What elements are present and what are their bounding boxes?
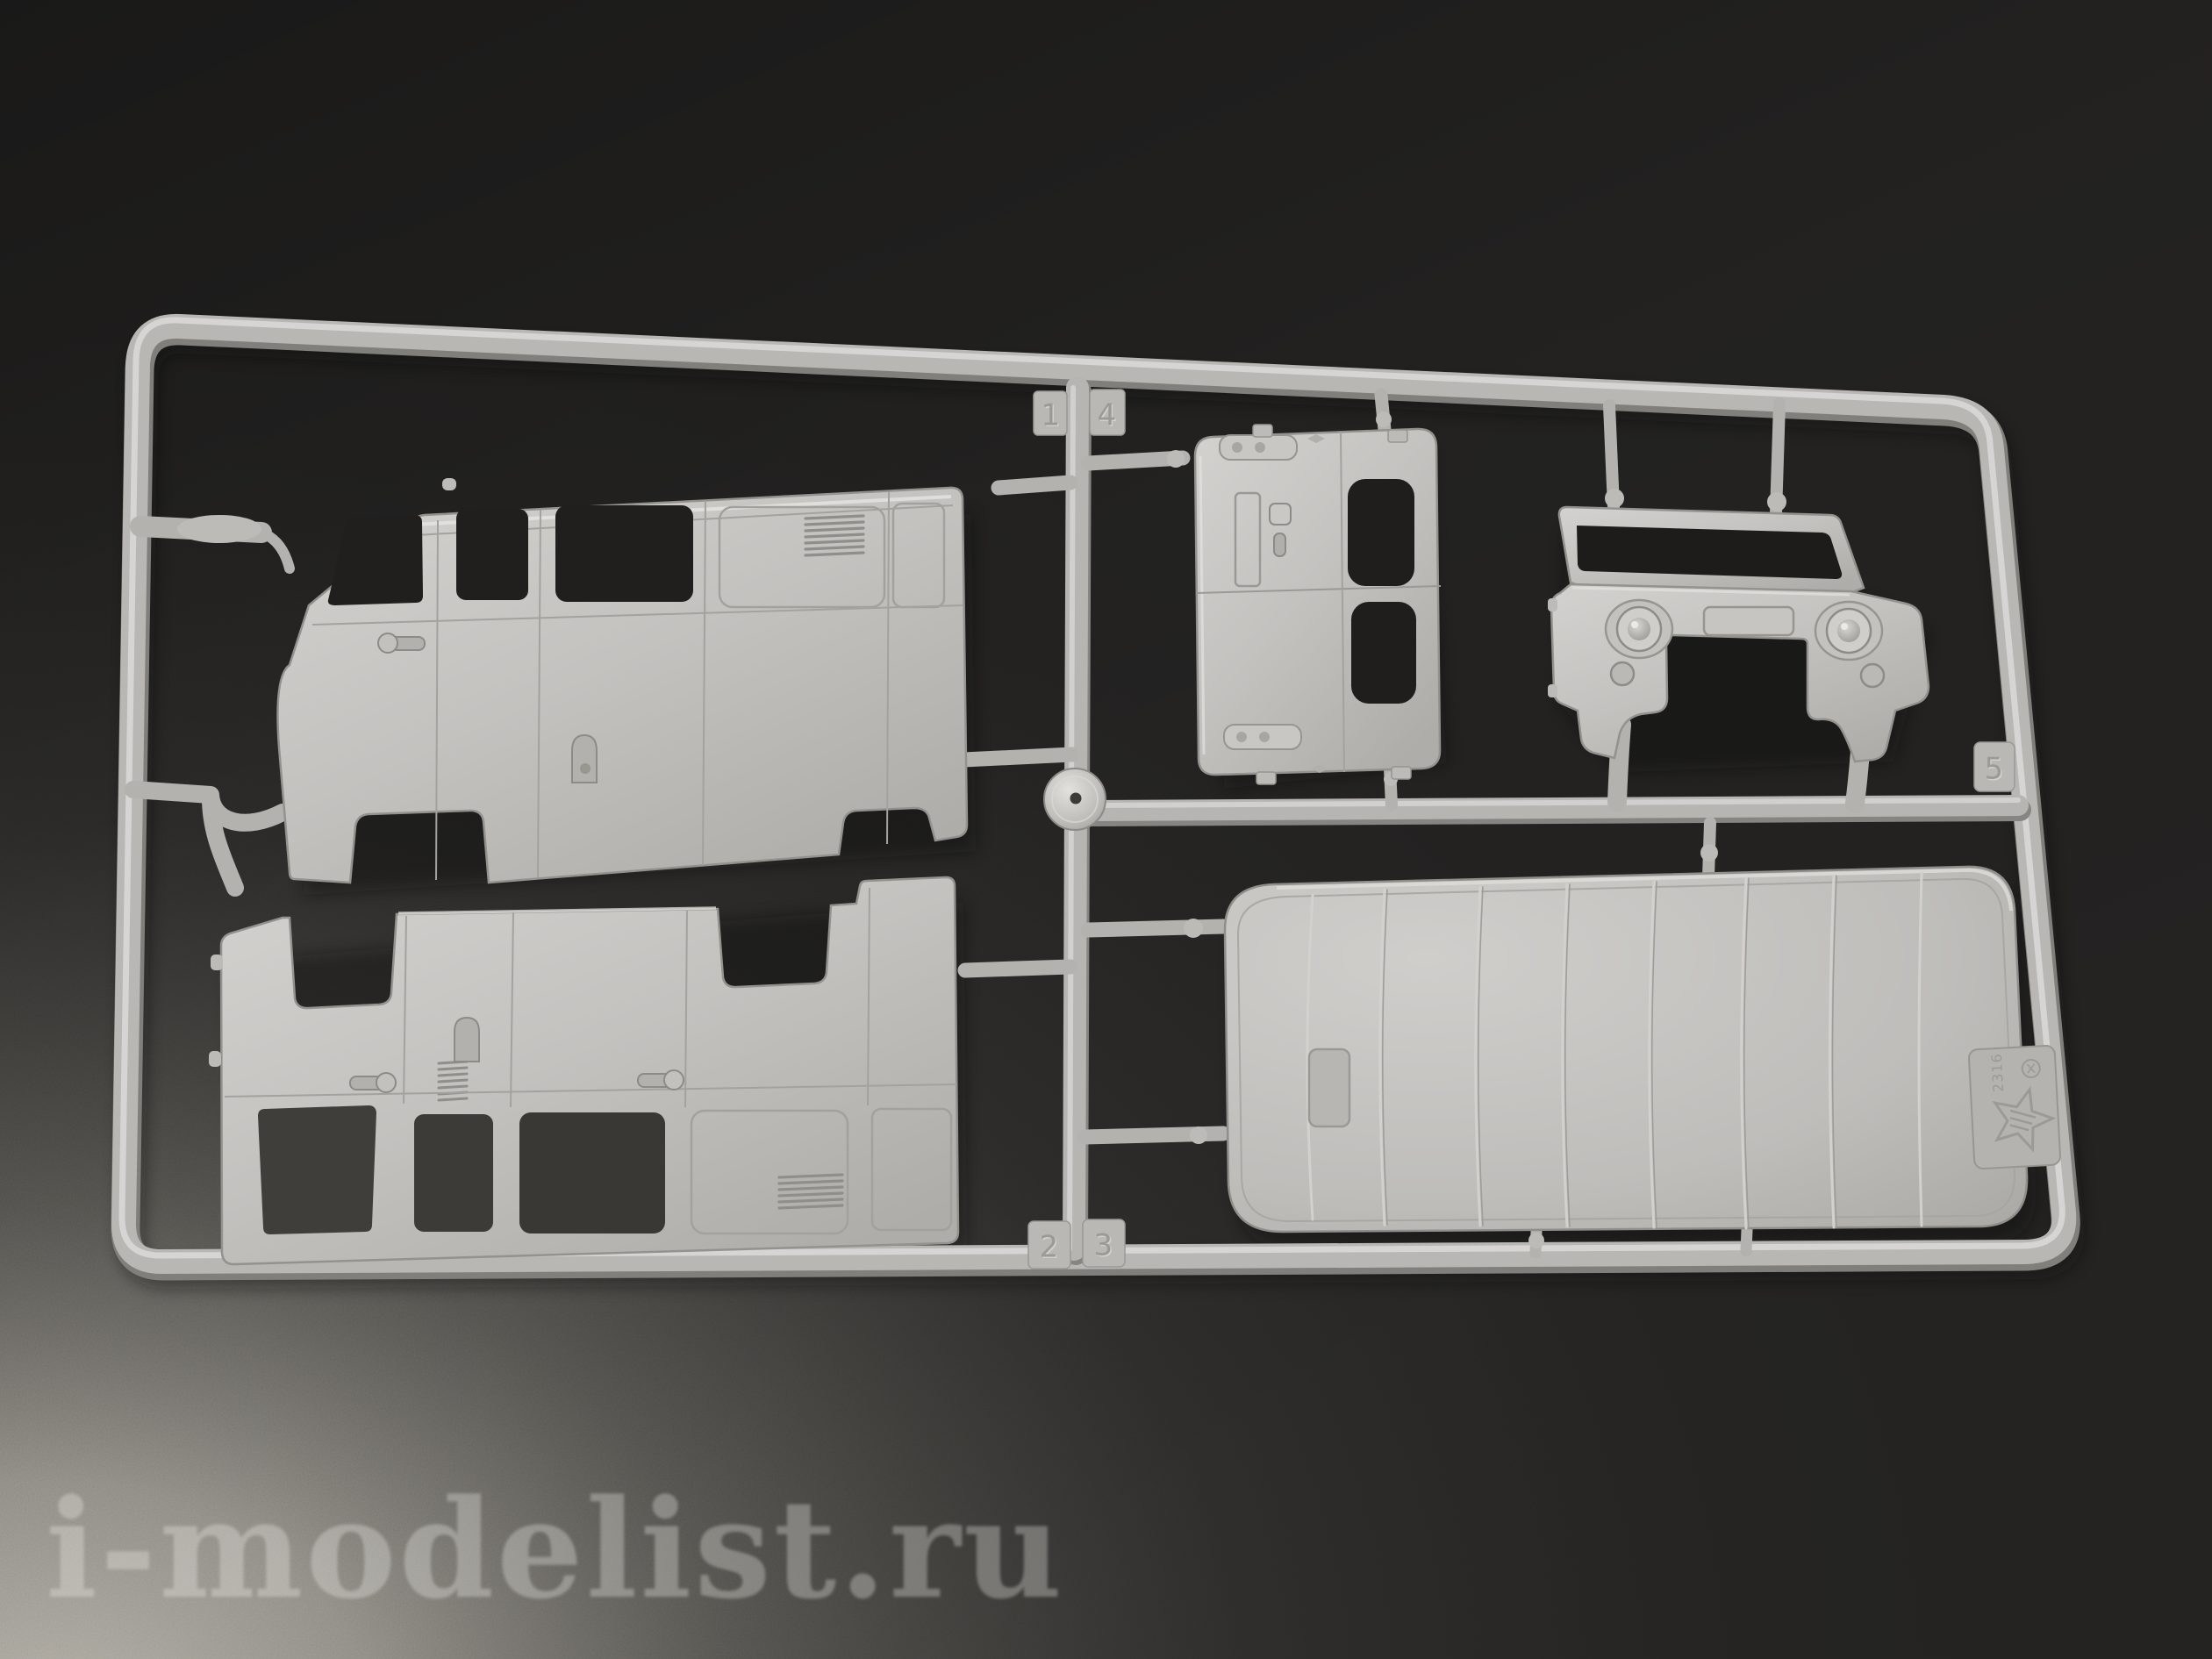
marker-light bbox=[1861, 664, 1884, 687]
door-handle bbox=[378, 633, 425, 653]
side-window-opening bbox=[456, 509, 528, 600]
tag-number: 4 bbox=[1098, 398, 1117, 433]
sprue-nub bbox=[211, 955, 223, 970]
headlight-dome bbox=[1628, 618, 1650, 640]
gate-ball bbox=[1376, 411, 1392, 427]
gate-arm bbox=[965, 967, 1070, 970]
headlight-dome bbox=[1837, 619, 1860, 642]
tag-number: 1 bbox=[1042, 398, 1061, 433]
headlight-recess-right bbox=[1815, 602, 1882, 660]
part-rear-doors-panel bbox=[1195, 425, 1441, 784]
gate-ball bbox=[1167, 450, 1185, 468]
door-stop-recess-shape bbox=[455, 1018, 479, 1062]
gate-arm bbox=[999, 483, 1070, 488]
hinge-tab bbox=[1388, 430, 1407, 442]
louvre-slat bbox=[439, 1086, 467, 1088]
side-window-opening bbox=[414, 1114, 493, 1232]
headlight-recess-left bbox=[1606, 600, 1672, 658]
door-stop-recess bbox=[572, 735, 597, 783]
louvre-slat bbox=[439, 1080, 467, 1082]
door-handle-escutcheon bbox=[376, 1073, 396, 1092]
gate-arm-lobe bbox=[177, 515, 261, 543]
gate-ball bbox=[1528, 1233, 1544, 1248]
gate-ball bbox=[1184, 919, 1203, 938]
gate-tag-3: 3 3 bbox=[1083, 1219, 1125, 1267]
door-handle-escutcheon bbox=[664, 1070, 684, 1090]
sprue-nub bbox=[1548, 598, 1557, 611]
hinge-blister bbox=[1220, 435, 1297, 460]
marker-light bbox=[1611, 662, 1634, 685]
part-roof-panel bbox=[1225, 867, 2027, 1232]
number-plate-recess bbox=[1704, 607, 1793, 635]
gate-ball bbox=[1700, 844, 1718, 862]
sprue-nub bbox=[1548, 684, 1557, 697]
louvre-slat bbox=[439, 1068, 467, 1069]
gate-arm bbox=[1746, 1230, 1747, 1251]
door-stop-recess-shape bbox=[572, 735, 597, 783]
hub-hole bbox=[1070, 793, 1082, 804]
gate-ball bbox=[1190, 1126, 1207, 1144]
sprue-nub bbox=[209, 1051, 221, 1067]
door-stop-recess bbox=[455, 1018, 479, 1062]
gate-tag-5: 5 5 bbox=[1974, 742, 2015, 791]
tag-number: 3 bbox=[1094, 1228, 1113, 1263]
louvre-slat bbox=[439, 1074, 467, 1076]
gate-ball bbox=[1767, 492, 1786, 511]
photo-stage: 1 1 4 4 2 2 3 3 5 5 2316 bbox=[0, 0, 2212, 1659]
roof-hatch-recess bbox=[1309, 1049, 1349, 1126]
blister-bolt bbox=[1259, 732, 1270, 742]
blister-bolt bbox=[1232, 442, 1242, 453]
tag-number: 2 bbox=[1040, 1230, 1059, 1265]
sprue-photo: 1 1 4 4 2 2 3 3 5 5 2316 bbox=[0, 0, 2212, 1659]
gate-tag-2: 2 2 bbox=[1028, 1221, 1070, 1269]
hinge-tab bbox=[1256, 772, 1276, 784]
gate-ball bbox=[1605, 489, 1624, 508]
gate-arm bbox=[963, 754, 1072, 760]
headlight-glint bbox=[1841, 623, 1848, 630]
rear-window-opening bbox=[1348, 479, 1414, 586]
gate-tag-1: 1 1 bbox=[1034, 391, 1067, 435]
louvre-slat bbox=[439, 1098, 467, 1100]
brand-tag: 2316 bbox=[1969, 1045, 2062, 1169]
side-window-opening bbox=[519, 1112, 665, 1234]
blister-bolt bbox=[1236, 732, 1247, 742]
watermark-text: i-modelist.ru bbox=[46, 1469, 1065, 1629]
brand-kit-number: 2316 bbox=[1988, 1053, 2007, 1093]
hinge-tab bbox=[1392, 767, 1411, 779]
door-handle-escutcheon bbox=[378, 633, 397, 653]
hinge-blister bbox=[1224, 725, 1301, 749]
sprue-nub bbox=[442, 478, 456, 490]
door-window-opening bbox=[258, 1105, 376, 1234]
door-handle bbox=[350, 1073, 396, 1092]
door-stop-pin bbox=[580, 763, 591, 774]
rear-door-latch-slot bbox=[1274, 533, 1285, 556]
side-window-opening bbox=[555, 505, 693, 602]
gate-arm bbox=[133, 790, 211, 795]
tag-number: 5 bbox=[1985, 752, 2004, 787]
hinge-tab bbox=[1253, 425, 1272, 437]
gate-tag-4: 4 4 bbox=[1090, 390, 1125, 435]
injection-hub bbox=[1044, 769, 1106, 830]
headlight-glint bbox=[1631, 621, 1638, 628]
rear-door-handle bbox=[1270, 504, 1291, 525]
blister-bolt bbox=[1255, 442, 1265, 453]
door-handle bbox=[638, 1070, 684, 1090]
windscreen-opening bbox=[1577, 526, 1842, 579]
rear-window-opening bbox=[1351, 602, 1416, 704]
